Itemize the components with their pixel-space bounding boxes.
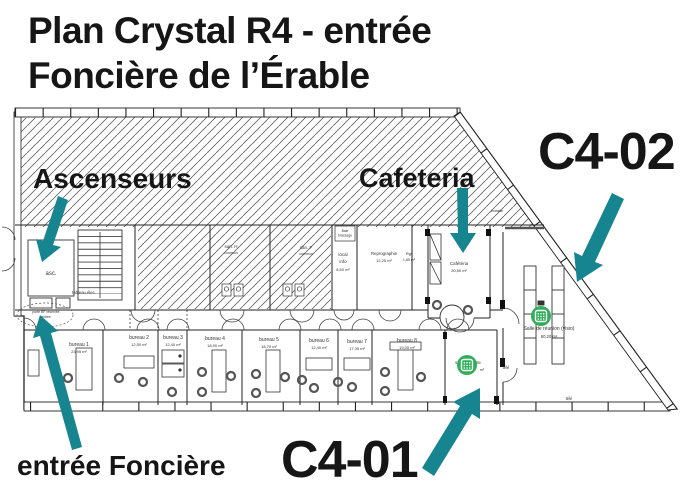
room-label-bureau-4: bureau 4 (205, 336, 225, 342)
room-area-bureau-4: 18,90 m² (207, 343, 223, 348)
c4-02-arrow (574, 193, 624, 282)
c4-02-label: C4-02 (538, 122, 675, 182)
room-area-bureau-2: 12,50 m² (131, 342, 147, 347)
room-label-bureau-6: bureau 6 (309, 338, 329, 344)
room-label-reunion-area: 60,20 m² (541, 334, 558, 339)
c4-01-label: C4-01 (281, 430, 418, 490)
cafeteria-label: Cafeteria (359, 163, 475, 194)
room-label-asc: asc. (45, 271, 56, 277)
room-label-bureau-1: bureau 1 (69, 342, 89, 348)
room-label-bureau-7: bureau 7 (347, 339, 367, 345)
room-area-bureau-1: 23,95 m² (71, 349, 87, 354)
room-label-estrade: estrade (491, 209, 503, 213)
room-area-bureau-6: 12,40 m² (311, 345, 327, 350)
entree-fonciere-label: entrée Foncière (17, 450, 226, 482)
page-title-line-2: Foncière de l’Érable (28, 53, 431, 98)
waiting-room-marker-icon (457, 355, 477, 375)
room-label-local-area: 8,50 m² (336, 267, 350, 272)
page-title-line-1: Plan Crystal R4 - entrée (28, 8, 431, 53)
room-label-bureau-5: bureau 5 (259, 337, 279, 343)
room-label-san-h: san. H (224, 244, 237, 249)
room-label-cafeteria-area: 20,50 m² (451, 268, 467, 273)
room-label-attente-area: m² (480, 368, 485, 372)
room-area-bureau-5: 18,70 m² (261, 344, 277, 349)
room-label-cafeteria: Cafétéria (450, 261, 469, 266)
room-label-repro-area: 12,25 m² (376, 258, 392, 263)
room-label-san-f-note: commun (299, 252, 312, 256)
room-label-local-2: info (339, 259, 347, 264)
room-label-bureau-2: bureau 2 (129, 335, 149, 341)
room-label-local-1: local (338, 252, 347, 257)
room-label-reunion: Salle de réunion (visio) (524, 326, 575, 332)
room-label-bureau-8: bureau 8 (397, 338, 417, 344)
room-label-porte-1: porte BF réservée (32, 310, 59, 314)
page-title: Plan Crystal R4 - entrée Foncière de l’É… (28, 8, 431, 98)
room-label-tableau-elec: tableau élec. (72, 290, 96, 295)
room-label-tele-2: télé (566, 396, 573, 401)
room-label-rgt-area: 1,85 m² (403, 258, 416, 262)
room-label-san-f: san. F (300, 245, 313, 250)
room-label-repro: Reprographie (371, 251, 398, 256)
room-area-bureau-8: 19,05 m² (399, 345, 415, 350)
room-label-baie-1: Baie (342, 229, 349, 233)
room-area-bureau-3: 12,40 m² (165, 342, 181, 347)
room-label-tele-1: télé (503, 365, 510, 370)
ascenseurs-label: Ascenseurs (33, 163, 192, 195)
floor-plan-page: asc. tableau élec. san. H commun san. F … (0, 0, 700, 500)
meeting-room-marker-icon (531, 306, 551, 326)
entree-fonciere-arrow (33, 315, 82, 450)
room-area-bureau-7: 17,35 m² (349, 346, 365, 351)
c4-01-arrow (422, 388, 480, 476)
room-label-rgt: Rgt (406, 251, 413, 256)
room-label-san-h-note: commun (224, 251, 237, 255)
room-label-baie-2: brassage (338, 234, 352, 238)
room-label-bureau-3: bureau 3 (163, 335, 183, 341)
